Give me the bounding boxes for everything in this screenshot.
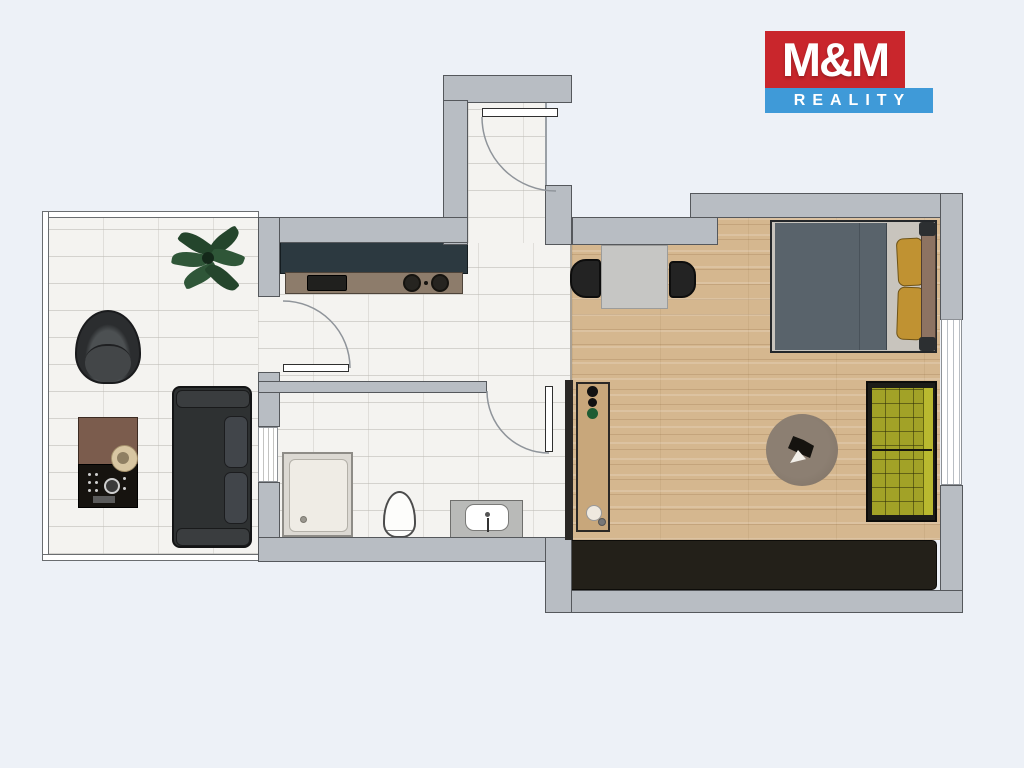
bathroom-door-arc: [487, 391, 549, 453]
logo-subtitle-text: REALITY: [794, 92, 911, 110]
living-door-arc: [283, 301, 350, 368]
logo-title-text: M&M: [782, 32, 888, 87]
floor-plan-canvas: M&M REALITY: [0, 0, 1024, 768]
logo-title-box: M&M: [765, 31, 905, 88]
entry-door-leaf: [482, 108, 558, 117]
logo-subtitle-box: REALITY: [765, 88, 933, 113]
living-door-leaf: [283, 364, 349, 372]
entry-door-arc: [482, 117, 556, 191]
bathroom-door-leaf: [545, 386, 553, 452]
